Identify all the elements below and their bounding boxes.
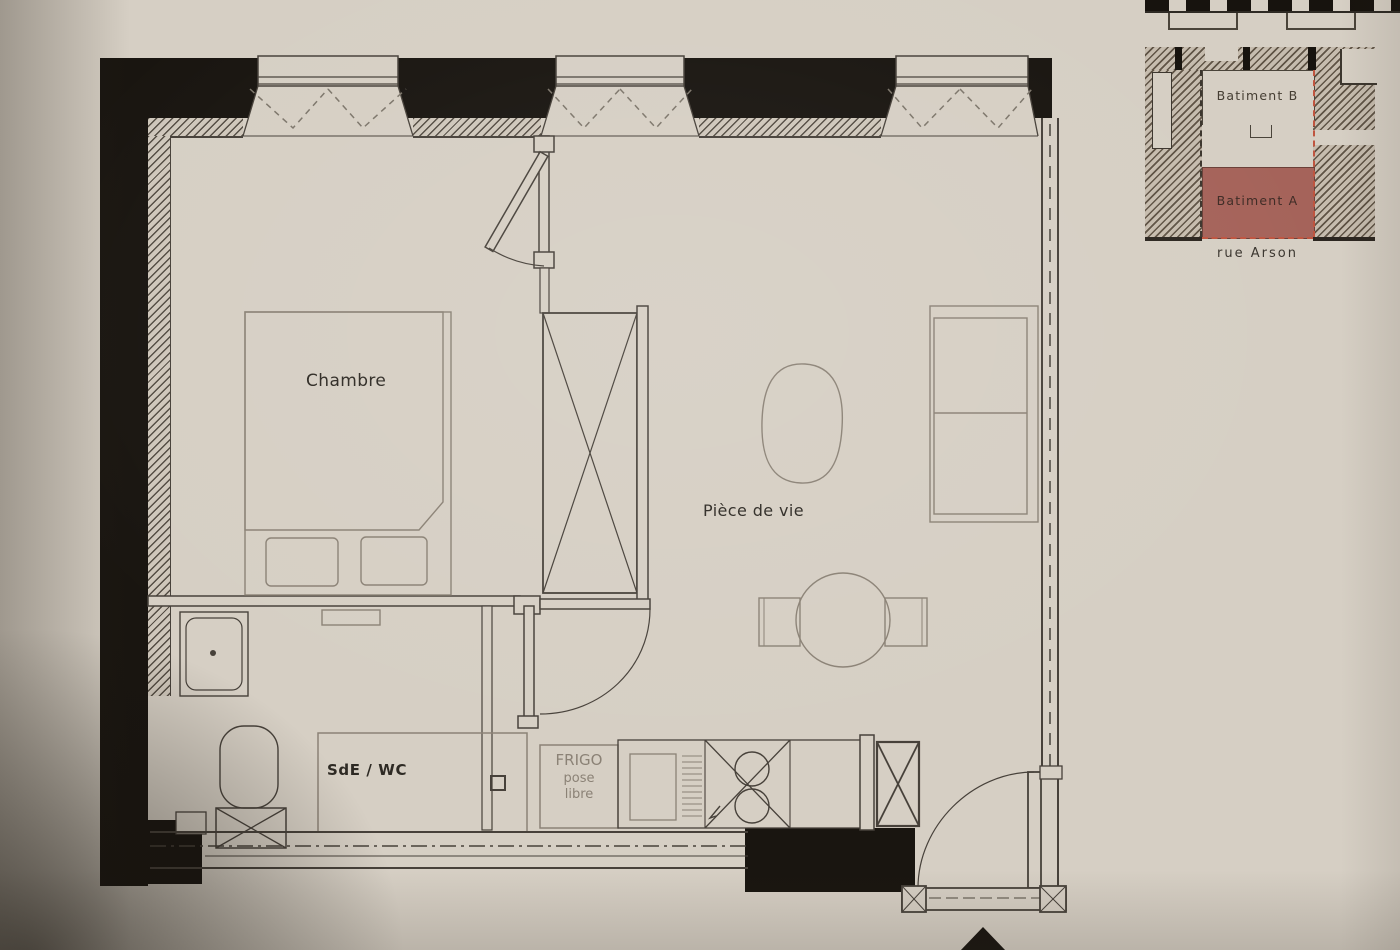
frigo-annotation: FRIGO pose libre xyxy=(538,751,620,804)
floor-drain-symbol xyxy=(491,776,505,790)
frigo-line3: libre xyxy=(538,787,620,804)
window-symbol-1 xyxy=(243,56,413,136)
dining-table xyxy=(759,573,927,667)
site-parcel-dash-bottom xyxy=(1202,237,1313,239)
site-wall-tick-2 xyxy=(1243,47,1250,70)
window-symbol-3 xyxy=(881,56,1038,136)
room-label-sde-wc: SdE / WC xyxy=(327,761,407,779)
site-hatch-right-bottom xyxy=(1313,145,1375,240)
door-balcony xyxy=(918,766,1062,888)
sofa xyxy=(930,306,1038,522)
mini-elevation-balcony-1 xyxy=(1168,13,1238,30)
site-label-building-a: Batiment A xyxy=(1202,193,1313,208)
site-gap-right xyxy=(1313,130,1377,145)
room-label-chambre: Chambre xyxy=(306,371,386,391)
site-strip-notch xyxy=(1250,125,1272,138)
entrance-arrow-icon xyxy=(960,927,1006,950)
site-label-street: rue Arson xyxy=(1202,246,1313,261)
balcony-threshold xyxy=(902,886,1066,912)
bathroom-cabinet xyxy=(322,610,380,625)
room-label-piece-de-vie: Pièce de vie xyxy=(703,501,804,520)
armchair-blob xyxy=(762,364,842,483)
technical-box-crossed xyxy=(176,808,286,848)
frigo-line1: FRIGO xyxy=(538,751,620,771)
column-symbol xyxy=(877,742,919,826)
site-wall-tick-3 xyxy=(1308,47,1316,70)
site-edge-dark-left xyxy=(1145,237,1202,241)
mini-elevation-balcony-2 xyxy=(1286,13,1356,30)
south-facade-band xyxy=(150,832,748,868)
site-label-building-b: Batiment B xyxy=(1202,88,1313,103)
site-notch-right xyxy=(1340,49,1377,85)
bed xyxy=(245,312,451,595)
door-chambre xyxy=(485,136,554,268)
window-symbol-2 xyxy=(541,56,699,136)
kitchen-end-wall xyxy=(860,735,874,830)
site-edge-dark-right xyxy=(1313,237,1375,241)
toilet-symbol xyxy=(220,726,278,808)
site-side-building xyxy=(1152,72,1172,149)
wardrobe-symbol xyxy=(540,268,648,602)
site-parcel-dash-right xyxy=(1313,70,1315,237)
frigo-line2: pose xyxy=(538,771,620,788)
site-notch-top xyxy=(1205,47,1238,61)
bathroom-inner-zone xyxy=(318,733,527,832)
sink-symbol xyxy=(705,740,790,828)
shower-symbol xyxy=(180,612,248,696)
wall-chambre-south xyxy=(148,596,540,614)
site-wall-tick-1 xyxy=(1175,47,1182,70)
floor-plan-photo: Chambre Pièce de vie SdE / WC FRIGO pose… xyxy=(0,0,1400,950)
